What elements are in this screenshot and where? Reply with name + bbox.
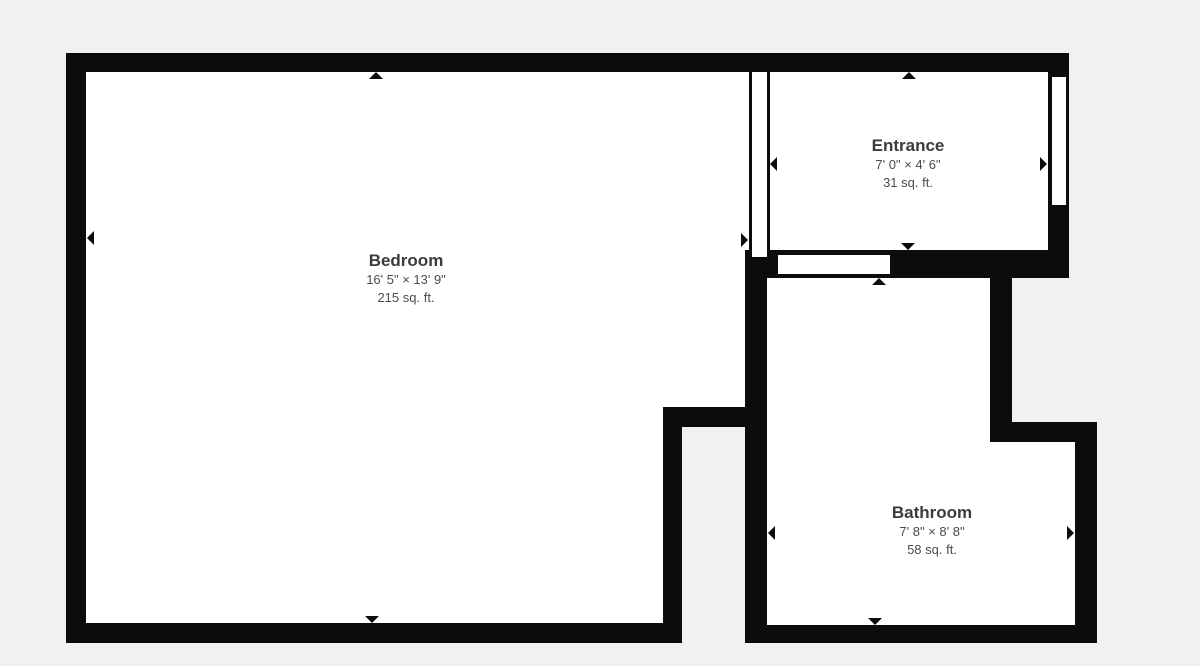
wall-bathroom-bottom	[745, 625, 1097, 643]
entrance-dimensions: 7' 0" × 4' 6"	[872, 156, 945, 174]
dimension-arrow-entrance-bottom	[901, 243, 915, 250]
dimension-arrow-bedroom-bottom	[365, 616, 379, 623]
entrance-bathroom-door-opening	[778, 255, 890, 274]
dimension-arrow-bedroom-left	[87, 231, 94, 245]
wall-bathroom-right-lower	[1075, 442, 1097, 643]
wall-bedroom-bottom	[66, 623, 682, 643]
wall-bathroom-right-upper	[990, 270, 1012, 427]
wall-top	[66, 53, 1069, 72]
bedroom-dimensions: 16' 5" × 13' 9"	[366, 271, 446, 289]
entrance-name: Entrance	[872, 135, 945, 156]
bathroom-dimensions: 7' 8" × 8' 8"	[892, 523, 972, 541]
bedroom-label: Bedroom 16' 5" × 13' 9" 215 sq. ft.	[366, 250, 446, 307]
bedroom-area-upper	[86, 72, 749, 407]
entrance-label: Entrance 7' 0" × 4' 6" 31 sq. ft.	[872, 135, 945, 192]
dimension-arrow-entrance-left	[770, 157, 777, 171]
dimension-arrow-entrance-right	[1040, 157, 1047, 171]
bathroom-area-text: 58 sq. ft.	[892, 541, 972, 559]
wall-left	[66, 53, 86, 643]
wall-bathroom-left	[745, 262, 767, 643]
wall-bathroom-step	[990, 422, 1097, 442]
dimension-arrow-bathroom-left	[768, 526, 775, 540]
bedroom-area-text: 215 sq. ft.	[366, 289, 446, 307]
dimension-arrow-bedroom-top	[369, 72, 383, 79]
floor-plan: Bedroom 16' 5" × 13' 9" 215 sq. ft. Entr…	[0, 0, 1200, 666]
dimension-arrow-bathroom-bottom	[868, 618, 882, 625]
bedroom-area-lower	[86, 407, 663, 623]
bathroom-label: Bathroom 7' 8" × 8' 8" 58 sq. ft.	[892, 502, 972, 559]
entrance-window	[1052, 77, 1066, 205]
bedroom-name: Bedroom	[366, 250, 446, 271]
bedroom-entrance-opening	[752, 72, 767, 257]
dimension-arrow-bathroom-right	[1067, 526, 1074, 540]
dimension-arrow-bathroom-top	[872, 278, 886, 285]
wall-bedroom-right-lower	[663, 407, 682, 643]
dimension-arrow-entrance-top	[902, 72, 916, 79]
entrance-area-text: 31 sq. ft.	[872, 174, 945, 192]
bathroom-name: Bathroom	[892, 502, 972, 523]
dimension-arrow-bedroom-right	[741, 233, 748, 247]
